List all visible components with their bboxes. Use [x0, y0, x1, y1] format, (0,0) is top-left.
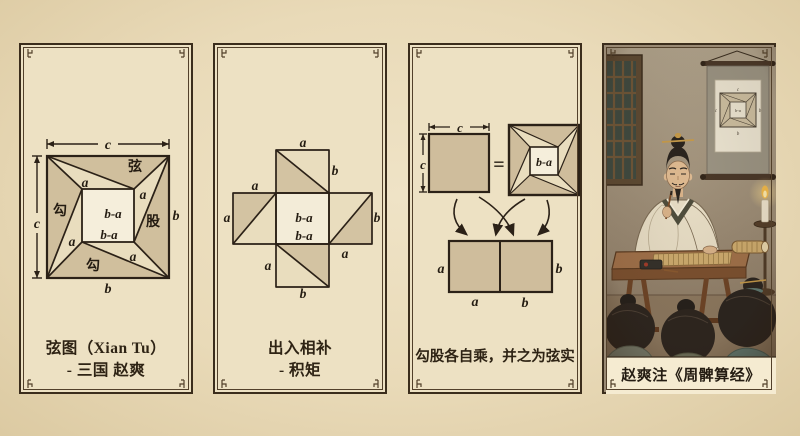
- label-b-minus-a: b-a: [295, 228, 313, 243]
- panel-xian-tu: c c 弦 a a 勾 a 勾: [19, 43, 193, 394]
- corner-ornament-icon: [175, 376, 187, 388]
- vignette-overlay: [606, 47, 776, 357]
- mini-pinwheel: b-a: [509, 125, 579, 195]
- corner-ornament-icon: [369, 49, 381, 61]
- panel4-caption: 赵爽注《周髀算经》: [620, 366, 761, 384]
- corner-ornament-icon: [414, 376, 426, 388]
- label-c-top: c: [105, 138, 112, 153]
- corner-ornament-icon: [414, 49, 426, 61]
- label-b-minus-a: b-a: [100, 227, 118, 242]
- label-gu-right: 股: [146, 214, 161, 230]
- equality-diagram: c c = b-a: [412, 47, 582, 394]
- label-c-left: c: [420, 157, 426, 172]
- corner-ornament-icon: [369, 376, 381, 388]
- label-a: a: [82, 175, 89, 190]
- panel-chu-ru-xiang-bu: a b a a b-a b-a b a a b 出入相补 - 积矩: [213, 43, 387, 394]
- label-a: a: [265, 258, 272, 273]
- panel1-caption: 弦图（Xian Tu） - 三国 赵爽: [21, 338, 191, 382]
- corner-ornament-icon: [564, 49, 576, 61]
- label-b-right: b: [173, 209, 180, 224]
- corner-ornament-icon: [25, 376, 37, 388]
- label-a: a: [300, 135, 307, 150]
- label-a: a: [140, 187, 147, 202]
- ab-rectangle: a b a b: [438, 241, 563, 311]
- corner-ornament-icon: [219, 376, 231, 388]
- caption-line: 出入相补: [215, 338, 385, 360]
- corner-ornament-icon: [564, 376, 576, 388]
- c-square: c c: [419, 120, 489, 192]
- label-a: a: [130, 249, 137, 264]
- label-b: b: [332, 163, 339, 178]
- corner-ornament-icon: [25, 49, 37, 61]
- panel2-caption: 出入相补 - 积矩: [215, 338, 385, 382]
- caption-line: - 积矩: [215, 360, 385, 382]
- label-xian: 弦: [128, 158, 142, 175]
- label-a: a: [252, 178, 259, 193]
- caption-line: - 三国 赵爽: [21, 360, 191, 382]
- corner-ornament-icon: [758, 49, 770, 61]
- label-gou-bottom: 勾: [86, 257, 100, 274]
- corner-ornament-icon: [608, 376, 620, 388]
- corner-ornament-icon: [175, 49, 187, 61]
- label-b-right: b: [556, 262, 563, 277]
- corner-ornament-icon: [219, 49, 231, 61]
- label-b: b: [300, 286, 307, 301]
- label-a: a: [69, 234, 76, 249]
- corner-ornament-icon: [758, 376, 770, 388]
- label-a-left: a: [438, 262, 445, 277]
- caption-line: 弦图（Xian Tu）: [21, 338, 191, 360]
- label-b-minus-a: b-a: [295, 210, 313, 225]
- label-b-bottom: b: [522, 296, 529, 311]
- dimension-arrow-top: c: [47, 138, 169, 153]
- dimension-arrow-left: c: [32, 156, 42, 278]
- panel-zhao-shuang-illustration: c c b b b-a: [602, 43, 776, 394]
- label-b-minus-a: b-a: [104, 206, 122, 221]
- panel-gou-gu-theorem: c c = b-a: [408, 43, 582, 394]
- corner-ornament-icon: [608, 49, 620, 61]
- label-c-left: c: [34, 217, 41, 232]
- label-gou-left: 勾: [53, 202, 67, 219]
- scholar-illustration: c c b b b-a: [606, 47, 776, 394]
- crossing-arrows: [454, 197, 549, 234]
- label-b: b: [374, 210, 381, 225]
- infographic-canvas: { "palette": { "background": "#e9dab8", …: [0, 0, 800, 436]
- caption-line: 勾股各自乘，并之为弦实: [410, 346, 580, 368]
- label-a: a: [342, 246, 349, 261]
- equals-sign: =: [493, 154, 504, 176]
- label-a-bottom: a: [472, 295, 479, 310]
- label-b-bottom: b: [105, 282, 112, 297]
- label-b-minus-a: b-a: [536, 155, 552, 169]
- panel3-caption: 勾股各自乘，并之为弦实: [410, 346, 580, 368]
- label-a: a: [224, 210, 231, 225]
- label-c-top: c: [457, 120, 463, 135]
